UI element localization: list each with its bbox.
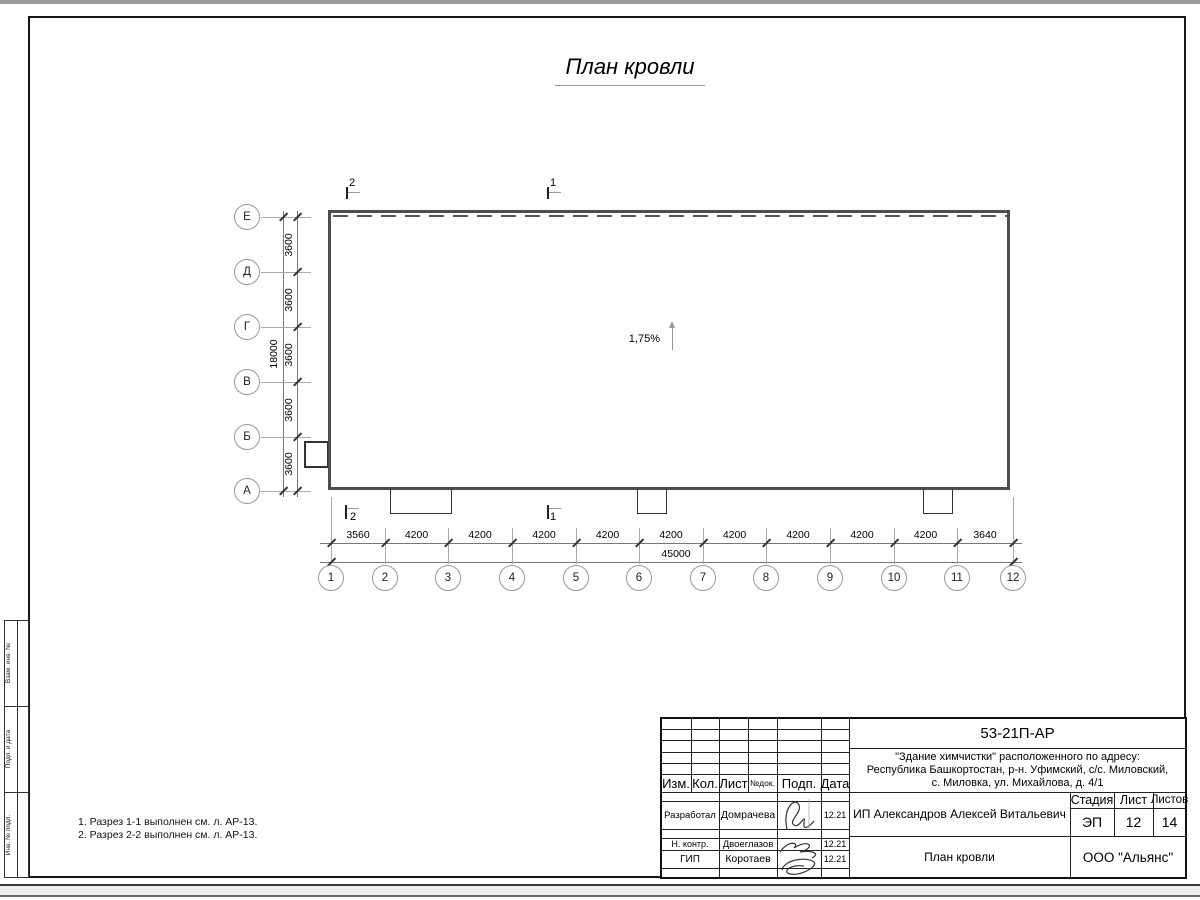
tb-col-podp: Подп. <box>777 774 821 792</box>
dim-label-col: 3560 <box>346 529 369 541</box>
tb-role-3: ГИП <box>661 850 719 868</box>
building-outline <box>328 210 1010 490</box>
tb-sheet-value: 12 <box>1114 808 1153 836</box>
drawing-sheet: Взам. инв. № Подп. и дата Инв. № подл. П… <box>0 0 1200 900</box>
tb-doc-number: 53-21П-АР <box>849 718 1186 748</box>
section-mark-1-top-tick <box>547 187 549 199</box>
tb-col-izm: Изм. <box>661 774 691 792</box>
tb-role-2: Н. контр. <box>661 838 719 850</box>
extension-line-row <box>261 382 311 383</box>
extension-line-row <box>261 437 311 438</box>
section-mark-1-top-line <box>549 192 561 193</box>
tb-project-line1: "Здание химчистки" расположенного по адр… <box>895 751 1140 764</box>
extension-line-row <box>261 272 311 273</box>
dim-line-columns <box>320 543 1022 544</box>
slope-label: 1,75% <box>608 333 660 345</box>
signature-developer <box>779 793 821 837</box>
extension-line-col <box>448 528 449 564</box>
tb-project-address: "Здание химчистки" расположенного по адр… <box>849 748 1186 792</box>
tb-date-3: 12.21 <box>821 850 849 868</box>
tb-sheet-title: План кровли <box>849 836 1070 878</box>
extension-line-col <box>957 528 958 564</box>
axis-circle-col-7: 7 <box>690 565 716 591</box>
tb-col-kol: Кол. <box>691 774 719 792</box>
dim-label-row-total: 18000 <box>268 339 280 368</box>
tb-stage-label: Стадия <box>1070 792 1114 808</box>
dim-label-row: 3600 <box>283 343 295 366</box>
extension-line-col <box>830 528 831 564</box>
signature-gip <box>776 836 824 878</box>
tb-sheets-value: 14 <box>1153 808 1186 836</box>
axis-circle-row-Б: Б <box>234 424 260 450</box>
extension-line-col <box>766 528 767 564</box>
extension-line-col <box>331 497 332 564</box>
tb-col-data: Дата <box>821 774 849 792</box>
axis-circle-col-3: 3 <box>435 565 461 591</box>
section-mark-1-top-label: 1 <box>550 177 556 189</box>
tb-company: ООО "Альянс" <box>1070 836 1186 878</box>
axis-circle-row-Г: Г <box>234 314 260 340</box>
dim-label-row: 3600 <box>283 452 295 475</box>
extension-line-col <box>894 528 895 564</box>
section-mark-2-top-line <box>348 192 360 193</box>
axis-circle-col-9: 9 <box>817 565 843 591</box>
roof-canopy-left <box>304 441 329 468</box>
dim-label-row: 3600 <box>283 288 295 311</box>
dim-label-col: 4200 <box>659 529 682 541</box>
tb-name-3: Коротаев <box>719 850 777 868</box>
section-mark-2-bottom-line <box>347 508 359 509</box>
extension-line-col <box>385 528 386 564</box>
tb-date-1: 12.21 <box>821 801 849 829</box>
tb-name-1: Домрачева <box>719 801 777 829</box>
extension-line-col <box>703 528 704 564</box>
axis-circle-col-10: 10 <box>881 565 907 591</box>
note-line-1: 1. Разрез 1-1 выполнен см. л. АР-13. <box>78 816 257 828</box>
tb-col-list: Лист <box>719 774 748 792</box>
dim-label-col: 4200 <box>914 529 937 541</box>
extension-line-col <box>512 528 513 564</box>
axis-circle-col-4: 4 <box>499 565 525 591</box>
dim-line-columns-total <box>320 562 1022 563</box>
tb-sheet-label: Лист <box>1114 792 1153 808</box>
section-mark-2-top-label: 2 <box>349 177 355 189</box>
axis-circle-col-8: 8 <box>753 565 779 591</box>
tb-date-2: 12.21 <box>821 838 849 850</box>
axis-circle-row-Е: Е <box>234 204 260 230</box>
tb-sheets-label: Листов <box>1153 792 1186 808</box>
tb-col-ndok: №док. <box>748 774 777 792</box>
roof-canopy-1 <box>390 488 452 514</box>
roof-edge-dashed-line <box>333 215 1007 217</box>
dim-label-col: 4200 <box>723 529 746 541</box>
axis-circle-col-6: 6 <box>626 565 652 591</box>
dim-label-col: 4200 <box>850 529 873 541</box>
dim-label-col: 4200 <box>786 529 809 541</box>
roof-canopy-3 <box>923 488 953 514</box>
slope-arrow-head <box>669 321 675 328</box>
axis-circle-row-Д: Д <box>234 259 260 285</box>
extension-line-col <box>639 528 640 564</box>
axis-circle-col-2: 2 <box>372 565 398 591</box>
axis-circle-row-А: А <box>234 478 260 504</box>
extension-line-col <box>576 528 577 564</box>
dim-label-col: 3640 <box>973 529 996 541</box>
axis-circle-col-11: 11 <box>944 565 970 591</box>
extension-line-row <box>261 217 311 218</box>
section-mark-2-bottom-label: 2 <box>350 511 356 523</box>
tb-project-line3: с. Миловка, ул. Михайлова, д. 4/1 <box>932 777 1104 790</box>
axis-circle-row-В: В <box>234 369 260 395</box>
axis-circle-col-12: 12 <box>1000 565 1026 591</box>
tb-project-line2: Республика Башкортостан, р-н. Уфимский, … <box>867 764 1168 777</box>
section-mark-2-top-tick <box>346 187 348 199</box>
dim-label-col-total: 45000 <box>661 548 690 560</box>
tb-stage-value: ЭП <box>1070 808 1114 836</box>
dim-label-row: 3600 <box>283 398 295 421</box>
slope-arrow-line <box>672 326 673 350</box>
axis-circle-col-5: 5 <box>563 565 589 591</box>
dim-label-col: 4200 <box>532 529 555 541</box>
dim-label-col: 4200 <box>405 529 428 541</box>
tb-client: ИП Александров Алексей Витальевич <box>849 792 1070 836</box>
roof-canopy-2 <box>637 488 667 514</box>
section-mark-1-bottom-line <box>549 508 561 509</box>
tb-role-1: Разработал <box>661 801 719 829</box>
extension-line-row <box>261 327 311 328</box>
extension-line-row <box>261 491 311 492</box>
dim-label-col: 4200 <box>468 529 491 541</box>
tb-name-2: Двоеглазов <box>719 838 777 850</box>
section-mark-1-bottom-label: 1 <box>550 511 556 523</box>
extension-line-col <box>1013 497 1014 564</box>
axis-circle-col-1: 1 <box>318 565 344 591</box>
note-line-2: 2. Разрез 2-2 выполнен см. л. АР-13. <box>78 829 257 841</box>
dim-label-col: 4200 <box>596 529 619 541</box>
dim-label-row: 3600 <box>283 233 295 256</box>
dim-line-rows <box>297 211 298 497</box>
